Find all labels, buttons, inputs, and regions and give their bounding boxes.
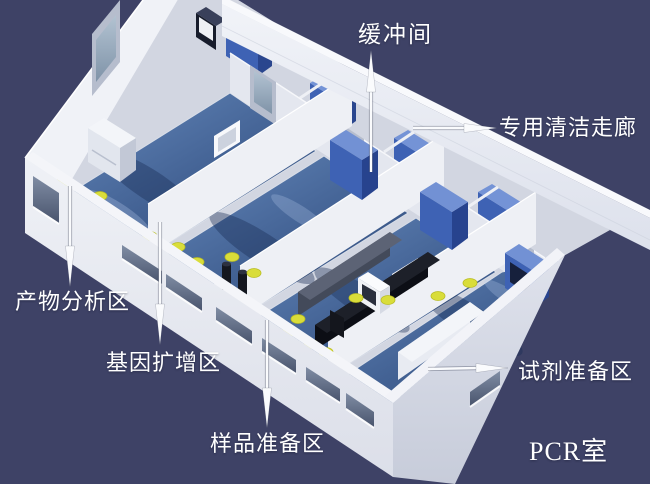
label-reagent-preparation: 试剂准备区 [518, 360, 633, 383]
lab-floorplan-diagram: 缓冲间 专用清洁走廊 产物分析区 基因扩增区 样品准备区 试剂准备区 PCR室 [0, 0, 650, 484]
label-clean-corridor: 专用清洁走廊 [499, 116, 637, 139]
label-sample-preparation: 样品准备区 [210, 432, 325, 455]
label-product-analysis: 产物分析区 [15, 290, 130, 313]
label-buffer-room: 缓冲间 [358, 23, 433, 47]
label-pcr-room-caption: PCR室 [529, 438, 608, 465]
label-gene-amplification: 基因扩增区 [106, 351, 221, 374]
building-illustration [0, 0, 650, 484]
